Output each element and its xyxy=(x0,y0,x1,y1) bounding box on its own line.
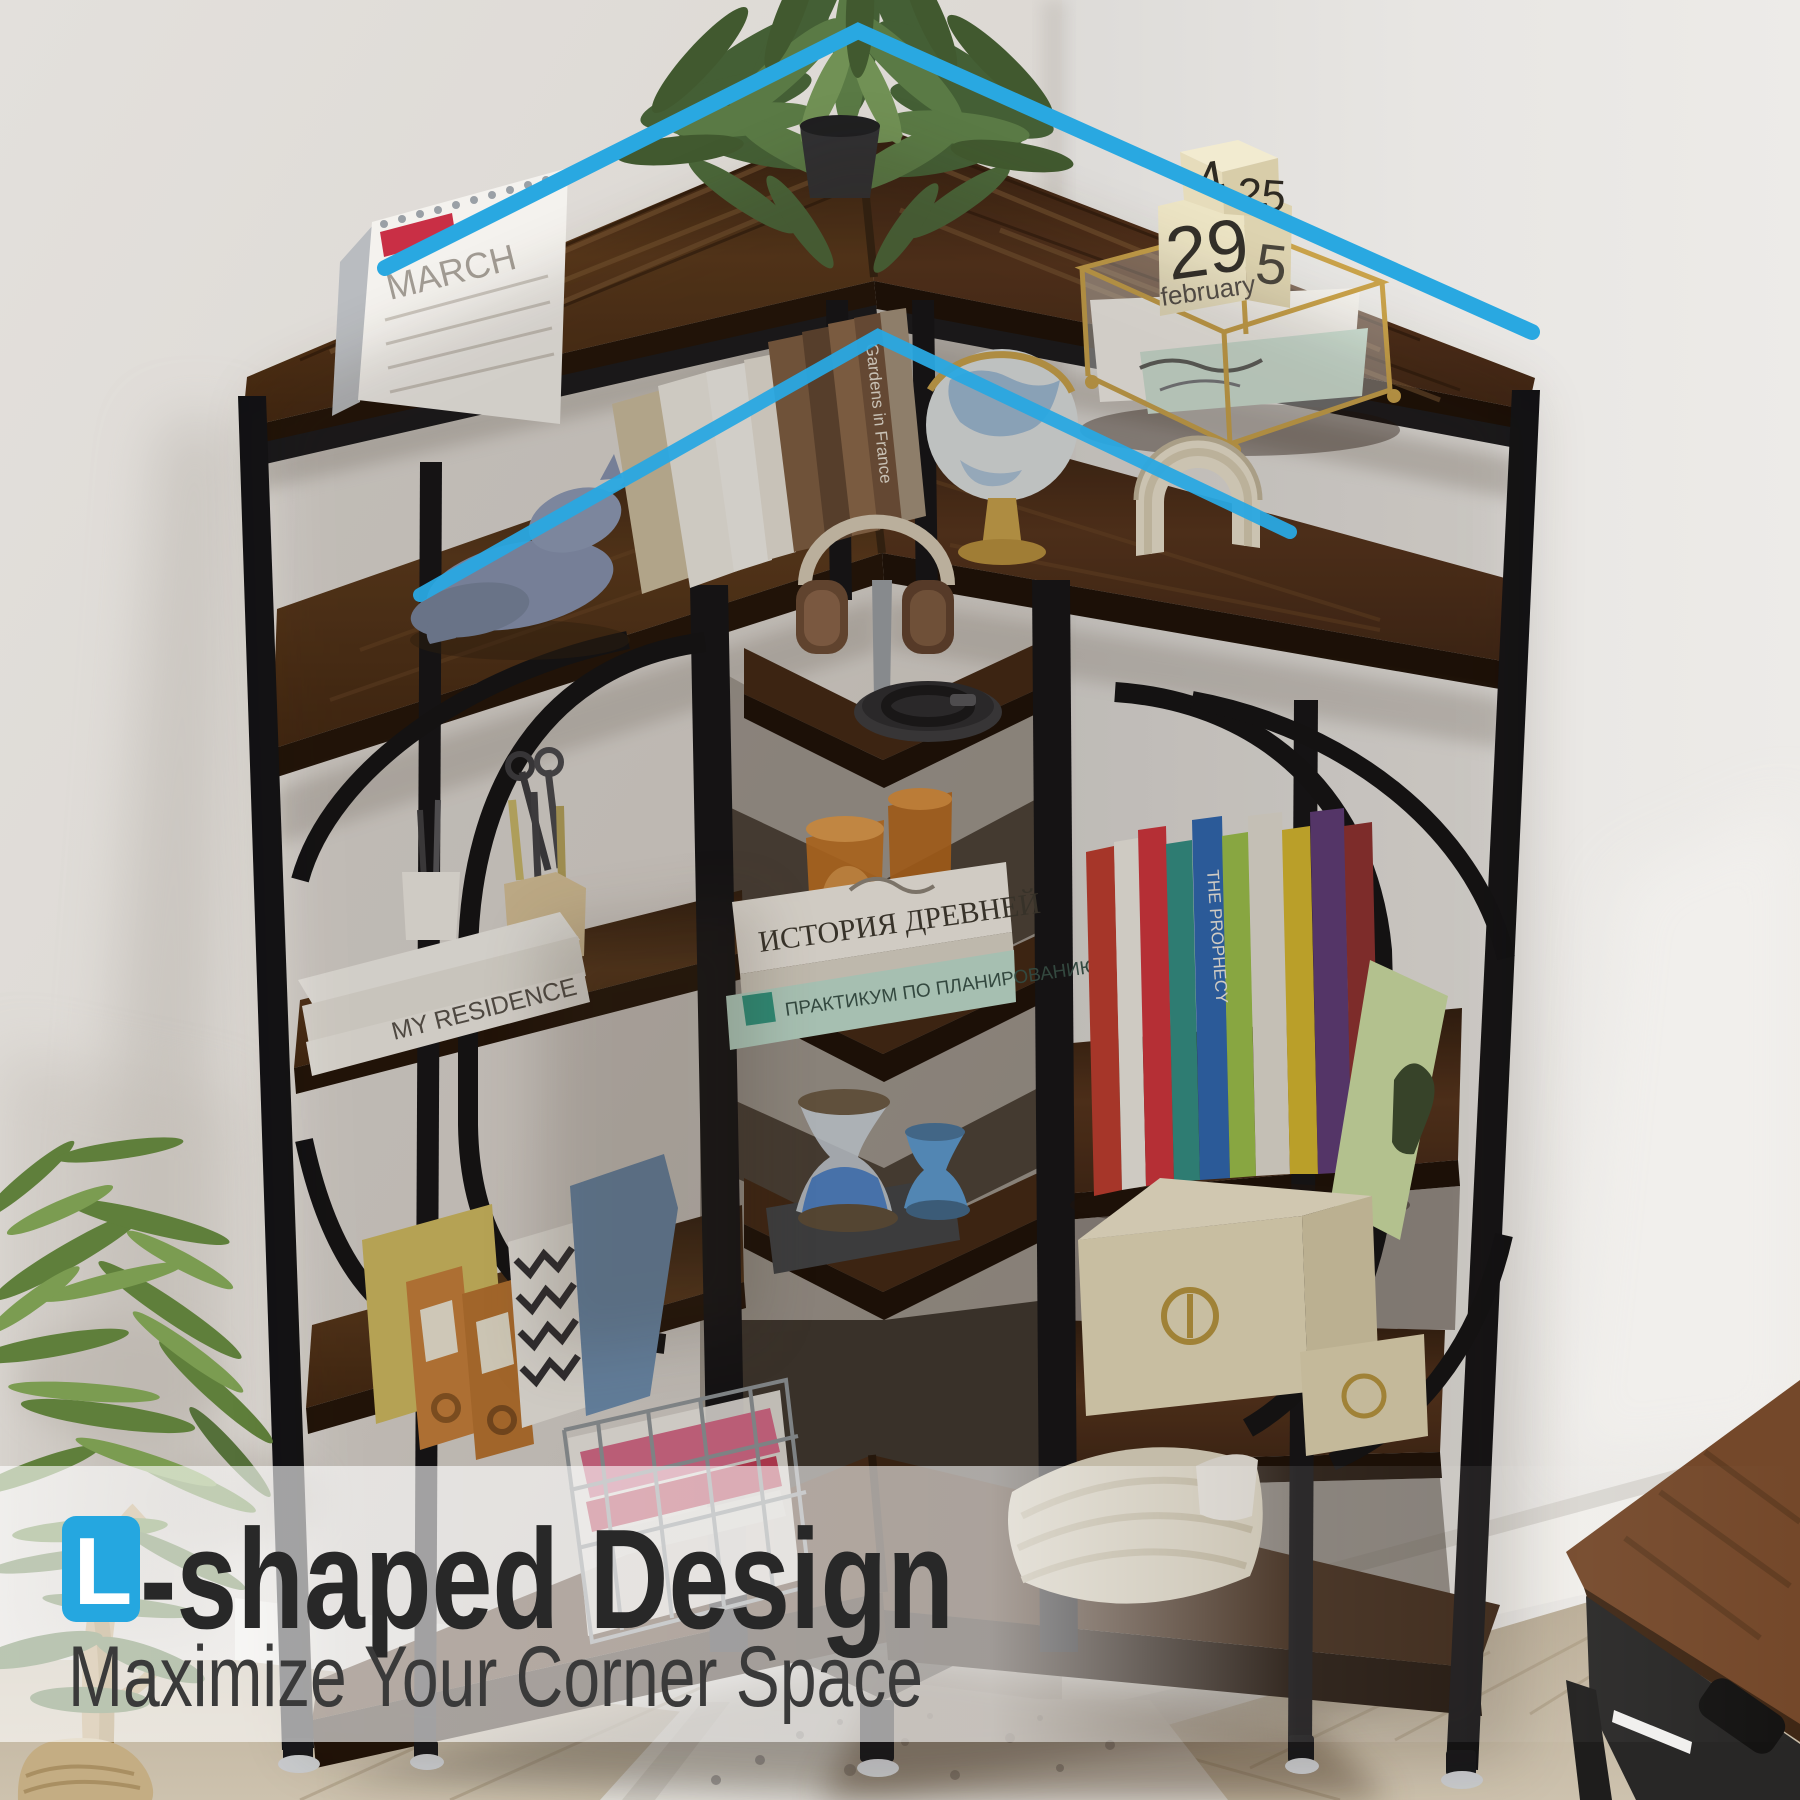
svg-text:L: L xyxy=(74,1518,133,1625)
svg-text:Maximize Your Corner Space: Maximize Your Corner Space xyxy=(68,1629,923,1725)
svg-text:5: 5 xyxy=(1253,231,1291,297)
